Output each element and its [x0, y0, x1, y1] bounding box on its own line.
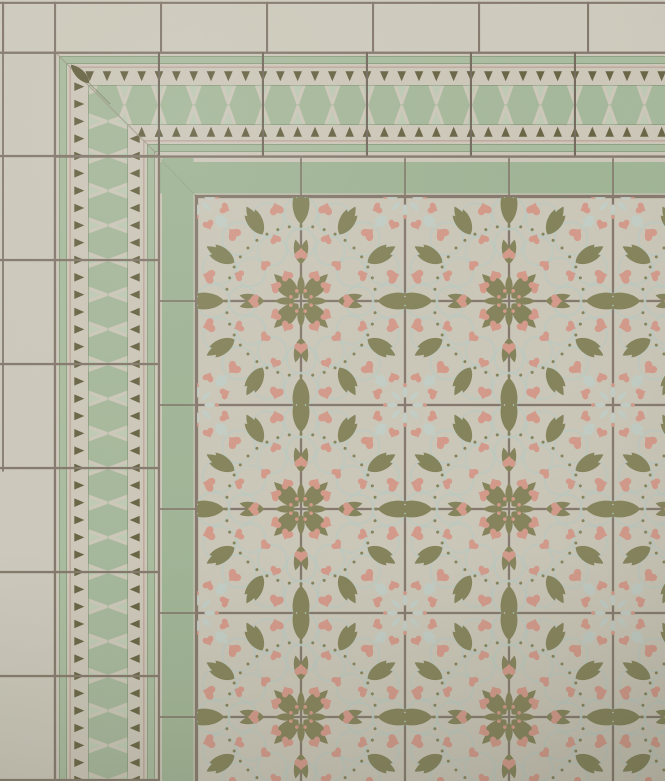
lighting-texture-overlay	[0, 0, 665, 781]
tiled-floor-photo	[0, 0, 665, 781]
floor-scene	[0, 0, 665, 781]
